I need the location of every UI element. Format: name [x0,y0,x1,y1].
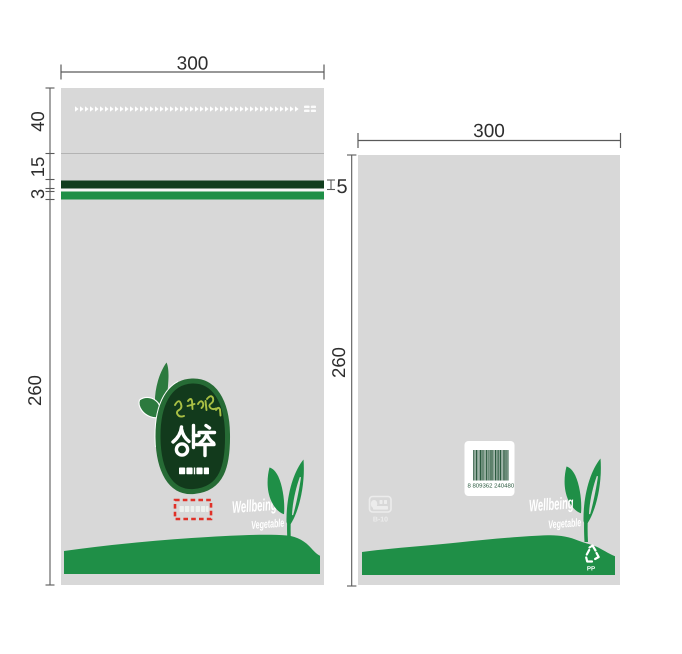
svg-text:PP: PP [587,566,595,573]
svg-text:300: 300 [473,121,505,142]
svg-text:Vegetable: Vegetable [251,518,285,532]
svg-text:300: 300 [177,54,209,75]
svg-text:B-10: B-10 [373,517,388,524]
svg-text:260: 260 [24,375,45,406]
svg-text:3: 3 [27,189,48,199]
svg-text:8 809362 240480: 8 809362 240480 [467,483,514,490]
svg-text:5: 5 [337,176,348,198]
svg-text:260: 260 [328,347,349,378]
svg-text:15: 15 [27,157,48,178]
svg-text:Vegetable: Vegetable [548,517,582,531]
svg-text:Wellbeing: Wellbeing [528,493,574,515]
svg-text:40: 40 [27,111,48,132]
